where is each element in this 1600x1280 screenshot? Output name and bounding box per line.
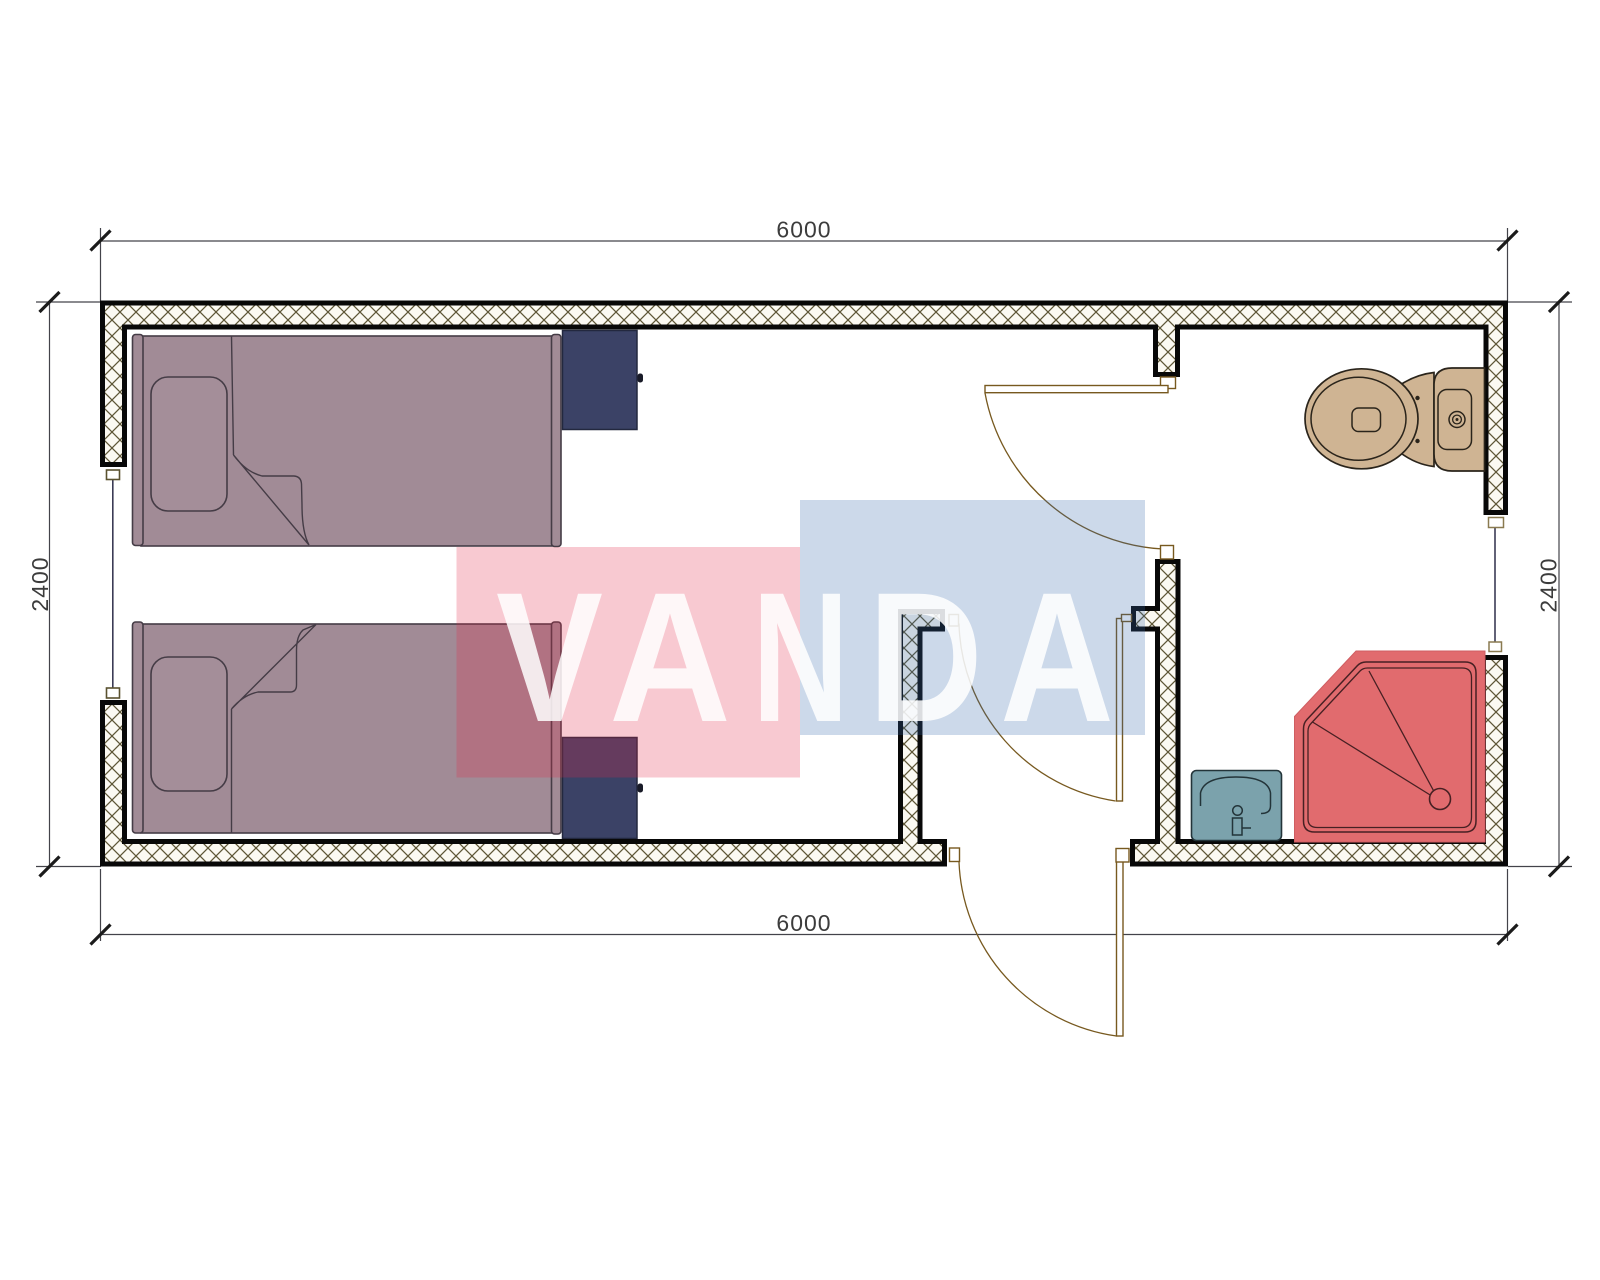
svg-text:V: V	[496, 555, 603, 761]
svg-text:6000: 6000	[776, 910, 831, 936]
svg-text:D: D	[868, 555, 983, 761]
svg-text:A: A	[609, 555, 731, 761]
svg-text:A: A	[1000, 555, 1114, 761]
svg-text:2400: 2400	[27, 556, 53, 611]
svg-text:6000: 6000	[776, 217, 831, 243]
svg-text:N: N	[752, 555, 849, 761]
svg-text:2400: 2400	[1536, 557, 1562, 612]
